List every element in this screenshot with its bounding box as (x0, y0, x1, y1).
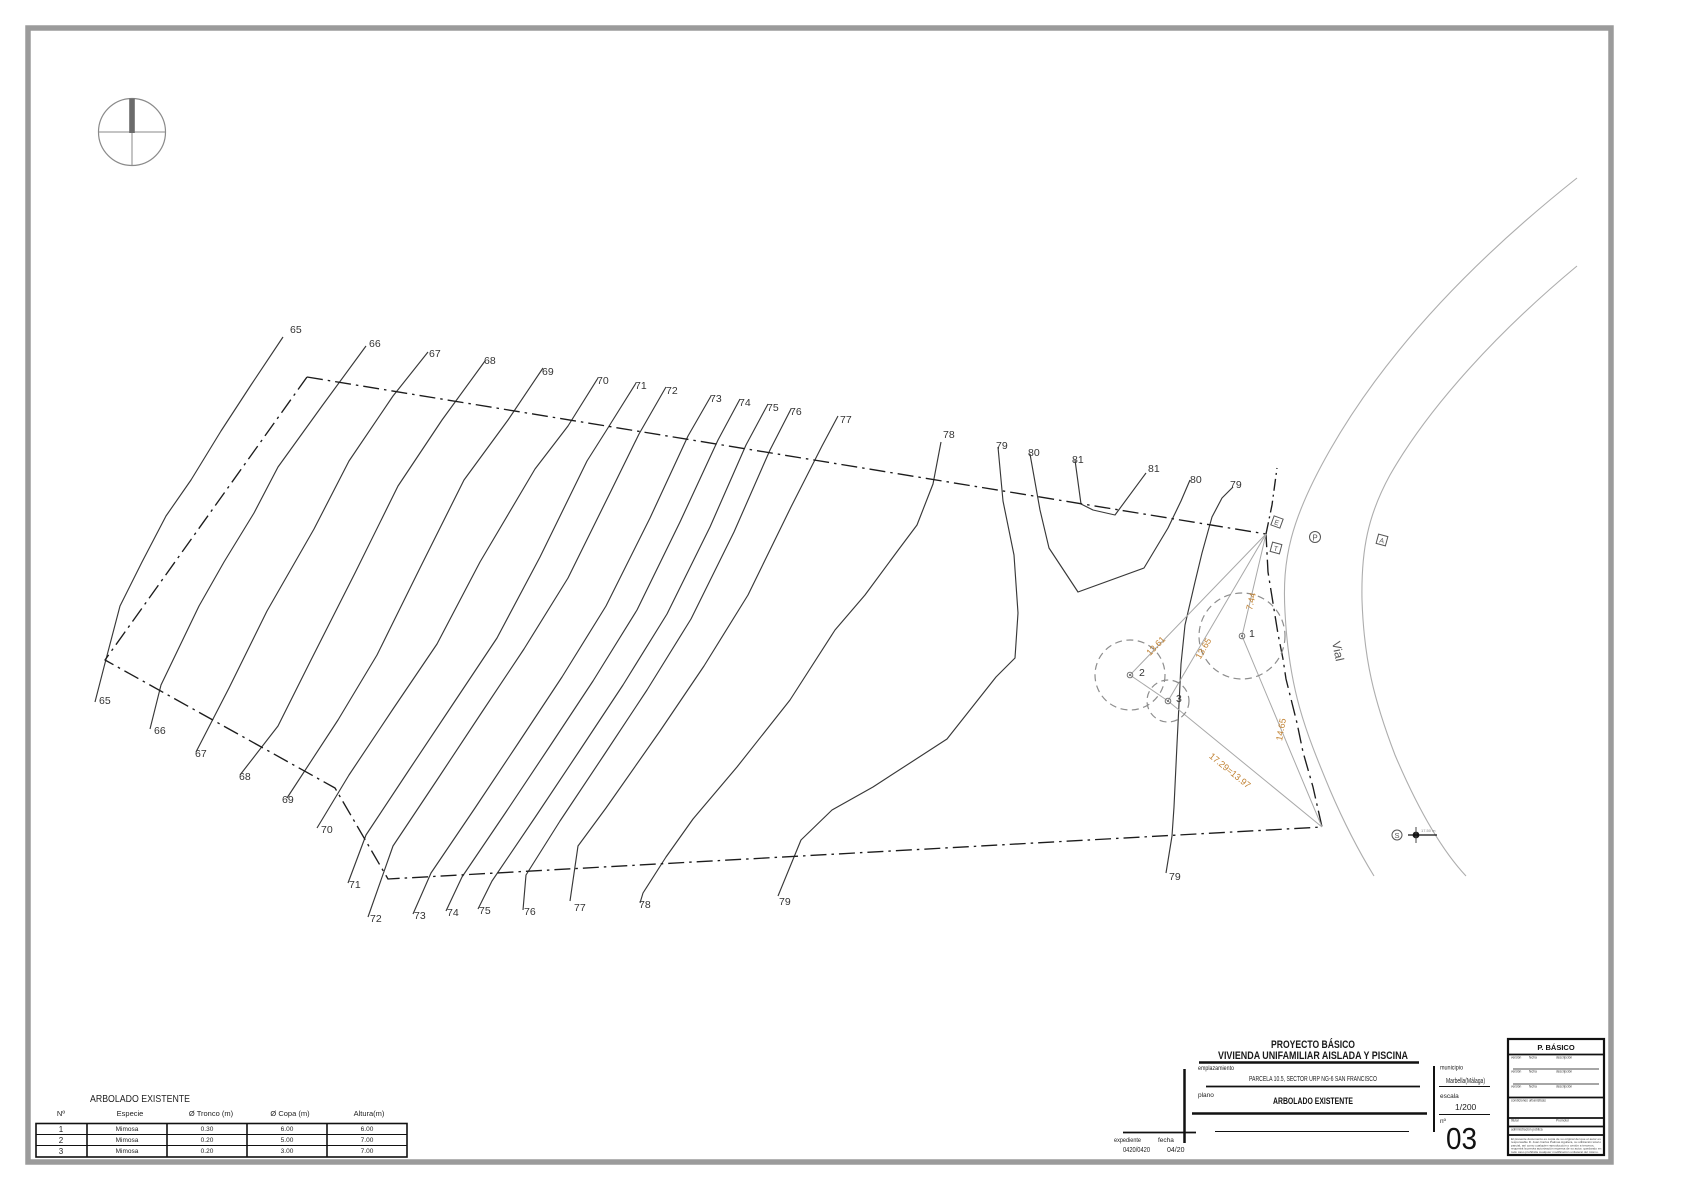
svg-text:79: 79 (779, 896, 791, 908)
svg-text:73: 73 (710, 393, 722, 405)
svg-text:Promotor: Promotor (1556, 1119, 1570, 1123)
svg-text:0.20: 0.20 (201, 1148, 214, 1155)
svg-text:Mimosa: Mimosa (116, 1137, 139, 1144)
svg-text:75: 75 (767, 402, 779, 414)
svg-text:72: 72 (666, 385, 678, 397)
svg-text:7.00: 7.00 (361, 1137, 374, 1144)
svg-text:68: 68 (484, 355, 496, 367)
svg-text:7.00: 7.00 (361, 1148, 374, 1155)
svg-text:66: 66 (154, 725, 166, 737)
svg-text:66: 66 (369, 338, 381, 350)
svg-text:67: 67 (429, 348, 441, 360)
svg-text:71: 71 (349, 879, 361, 891)
svg-text:Ø Copa (m): Ø Copa (m) (270, 1109, 310, 1118)
svg-text:0.30: 0.30 (201, 1126, 214, 1133)
svg-text:6.00: 6.00 (361, 1126, 374, 1133)
svg-text:03: 03 (1446, 1121, 1477, 1156)
svg-text:descripción: descripción (1556, 1070, 1572, 1074)
svg-text:79: 79 (1169, 871, 1181, 883)
svg-text:expediente: expediente (1114, 1137, 1141, 1144)
svg-text:fecha: fecha (1529, 1070, 1537, 1074)
svg-text:6.00: 6.00 (281, 1126, 294, 1133)
svg-text:79: 79 (1230, 479, 1242, 491)
svg-text:77: 77 (574, 902, 586, 914)
svg-text:0.20: 0.20 (201, 1137, 214, 1144)
svg-text:descripción: descripción (1556, 1085, 1572, 1089)
svg-text:3: 3 (59, 1147, 64, 1156)
svg-text:72: 72 (370, 913, 382, 925)
svg-text:2: 2 (59, 1136, 64, 1145)
svg-text:81: 81 (1148, 463, 1160, 475)
svg-text:descripción: descripción (1556, 1056, 1572, 1060)
svg-text:Mimosa: Mimosa (116, 1126, 139, 1133)
svg-text:78: 78 (943, 429, 955, 441)
svg-text:79: 79 (996, 440, 1008, 452)
svg-text:2: 2 (1139, 667, 1145, 679)
svg-text:versión: versión (1511, 1056, 1522, 1060)
svg-text:77: 77 (840, 414, 852, 426)
svg-text:fecha: fecha (1529, 1056, 1537, 1060)
svg-text:70: 70 (597, 375, 609, 387)
svg-text:municipio: municipio (1440, 1065, 1463, 1072)
svg-text:71: 71 (635, 380, 647, 392)
svg-text:emplazamiento: emplazamiento (1198, 1065, 1234, 1072)
svg-text:69: 69 (282, 794, 294, 806)
svg-text:escala: escala (1440, 1093, 1459, 1100)
svg-text:3: 3 (1176, 693, 1182, 705)
svg-text:Nº: Nº (57, 1109, 65, 1118)
svg-text:65: 65 (99, 695, 111, 707)
svg-text:administración pública: administración pública (1511, 1128, 1543, 1132)
svg-text:Especie: Especie (117, 1109, 144, 1118)
svg-text:76: 76 (524, 906, 536, 918)
svg-text:73: 73 (414, 910, 426, 922)
svg-text:S: S (1394, 831, 1399, 840)
svg-text:ARBOLADO EXISTENTE: ARBOLADO EXISTENTE (90, 1094, 190, 1105)
svg-text:todo caso prohibida cualquier: todo caso prohibida cualquier modificaci… (1511, 1150, 1599, 1154)
svg-text:1: 1 (59, 1125, 64, 1134)
svg-text:versión: versión (1511, 1085, 1522, 1089)
svg-text:fecha: fecha (1529, 1085, 1537, 1089)
svg-text:Mimosa: Mimosa (116, 1148, 139, 1155)
svg-text:condiciones urbanísticas: condiciones urbanísticas (1511, 1099, 1546, 1103)
svg-text:P: P (1312, 534, 1317, 543)
svg-text:Altura(m): Altura(m) (354, 1109, 385, 1118)
svg-text:74: 74 (447, 907, 459, 919)
svg-text:fecha: fecha (1158, 1137, 1174, 1144)
svg-text:65: 65 (290, 324, 302, 336)
svg-text:1/200: 1/200 (1455, 1102, 1477, 1112)
svg-text:5.00: 5.00 (281, 1137, 294, 1144)
svg-text:04/20: 04/20 (1167, 1147, 1185, 1154)
svg-text:versión: versión (1511, 1070, 1522, 1074)
svg-text:0420/0420: 0420/0420 (1123, 1147, 1150, 1154)
svg-text:Marbella(Málaga): Marbella(Málaga) (1446, 1078, 1485, 1085)
svg-text:Ø Tronco (m): Ø Tronco (m) (189, 1109, 234, 1118)
svg-text:67: 67 (195, 748, 207, 760)
svg-text:P. BÁSICO: P. BÁSICO (1537, 1043, 1575, 1052)
svg-text:titular: titular (1511, 1119, 1520, 1123)
svg-text:69: 69 (542, 366, 554, 378)
svg-text:74: 74 (739, 397, 751, 409)
svg-text:1: 1 (1249, 628, 1255, 640)
svg-text:3.00: 3.00 (281, 1148, 294, 1155)
svg-text:17.50 m: 17.50 m (1421, 828, 1436, 833)
svg-text:PARCELA 10.5, SECTOR URP NG-6: PARCELA 10.5, SECTOR URP NG-6 SAN FRANCI… (1249, 1076, 1377, 1083)
svg-text:76: 76 (790, 406, 802, 418)
svg-text:78: 78 (639, 899, 651, 911)
svg-text:68: 68 (239, 771, 251, 783)
svg-text:80: 80 (1028, 447, 1040, 459)
svg-text:70: 70 (321, 824, 333, 836)
svg-text:plano: plano (1198, 1092, 1214, 1099)
svg-text:VIVIENDA UNIFAMILIAR AISLADA: VIVIENDA UNIFAMILIAR AISLADA Y PISCINA (1218, 1050, 1408, 1062)
svg-text:81: 81 (1072, 454, 1084, 466)
svg-text:ARBOLADO EXISTENTE: ARBOLADO EXISTENTE (1273, 1096, 1353, 1107)
svg-text:80: 80 (1190, 474, 1202, 486)
svg-text:75: 75 (479, 905, 491, 917)
